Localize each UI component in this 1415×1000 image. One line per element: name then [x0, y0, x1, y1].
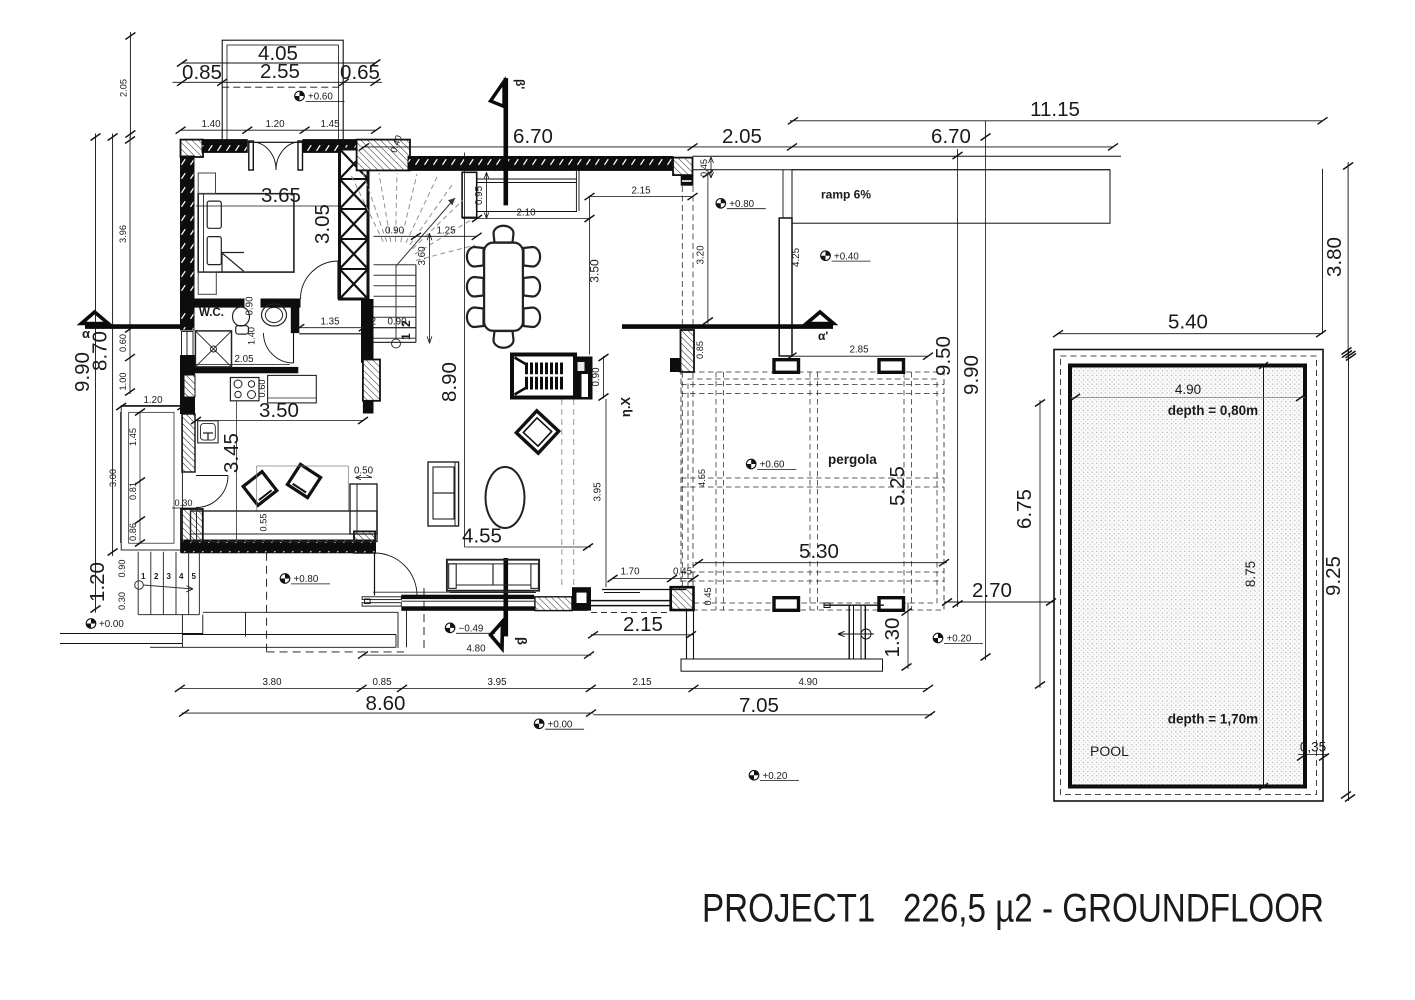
svg-text:PROJECT1 226,5 µ2 - GROUNDFL: PROJECT1 226,5 µ2 - GROUNDFLOOR: [702, 887, 1324, 931]
svg-text:1.20: 1.20: [265, 119, 285, 130]
svg-text:1.40: 1.40: [201, 119, 221, 130]
svg-text:β': β': [513, 79, 527, 89]
svg-text:5.25: 5.25: [886, 466, 909, 506]
svg-text:3.60: 3.60: [417, 246, 428, 266]
svg-text:2.10: 2.10: [516, 208, 536, 219]
svg-text:0.90: 0.90: [117, 560, 127, 578]
svg-text:9.90: 9.90: [960, 355, 983, 395]
svg-text:0.65: 0.65: [340, 61, 380, 84]
svg-text:8.90: 8.90: [438, 362, 461, 402]
svg-text:1.30: 1.30: [881, 618, 904, 658]
svg-text:3: 3: [167, 572, 172, 581]
svg-text:depth = 0,80m: depth = 0,80m: [1168, 403, 1258, 418]
svg-text:pergola: pergola: [828, 452, 877, 467]
svg-text:4.55: 4.55: [697, 469, 707, 487]
svg-text:2.15: 2.15: [632, 677, 652, 688]
svg-text:+0.80: +0.80: [729, 199, 754, 210]
svg-text:0.55: 0.55: [259, 514, 269, 532]
svg-text:3.95: 3.95: [487, 677, 507, 688]
svg-text:0,35: 0,35: [1300, 740, 1326, 755]
svg-text:0.81: 0.81: [128, 482, 138, 500]
svg-text:1.45: 1.45: [128, 428, 138, 446]
svg-text:3.50: 3.50: [588, 259, 602, 283]
svg-text:0.30: 0.30: [117, 592, 127, 610]
svg-text:ramp 6%: ramp 6%: [821, 188, 871, 202]
svg-text:0.95: 0.95: [474, 185, 485, 205]
svg-text:η.Χ: η.Χ: [618, 397, 633, 418]
svg-text:POOL: POOL: [1090, 743, 1129, 759]
svg-text:+0.00: +0.00: [99, 619, 124, 630]
svg-text:4.90: 4.90: [1175, 382, 1201, 397]
svg-text:1.00: 1.00: [118, 373, 128, 391]
svg-text:3.96: 3.96: [118, 225, 128, 243]
svg-text:1: 1: [141, 572, 146, 581]
svg-text:+0.20: +0.20: [947, 634, 972, 645]
svg-text:0.45: 0.45: [673, 567, 693, 578]
svg-text:+0.00: +0.00: [548, 719, 573, 730]
svg-text:0.30: 0.30: [175, 498, 193, 508]
svg-text:3.95: 3.95: [593, 482, 604, 502]
svg-text:4.55: 4.55: [462, 525, 502, 548]
svg-text:depth = 1,70m: depth = 1,70m: [1168, 712, 1258, 727]
svg-text:2: 2: [154, 572, 159, 581]
svg-text:+0.40: +0.40: [834, 251, 859, 262]
svg-text:8.75: 8.75: [1243, 561, 1258, 587]
svg-text:3.65: 3.65: [261, 184, 301, 207]
svg-text:7.05: 7.05: [739, 694, 779, 717]
svg-text:−0.49: −0.49: [459, 624, 484, 635]
svg-text:1.70: 1.70: [620, 567, 640, 578]
svg-text:1.25: 1.25: [436, 226, 456, 237]
svg-text:8.70: 8.70: [89, 331, 112, 371]
svg-text:3.00: 3.00: [108, 469, 118, 487]
svg-text:2.15: 2.15: [623, 613, 663, 636]
svg-text:0.50: 0.50: [354, 466, 374, 477]
svg-text:0.60: 0.60: [118, 334, 128, 352]
svg-text:8.60: 8.60: [366, 692, 406, 715]
svg-text:1: 1: [399, 333, 413, 340]
svg-text:2.05: 2.05: [119, 79, 129, 97]
svg-text:3.05: 3.05: [311, 204, 334, 244]
svg-text:0.85: 0.85: [372, 677, 392, 688]
svg-text:2.70: 2.70: [972, 579, 1012, 602]
svg-text:+0.80: +0.80: [294, 574, 319, 585]
svg-text:4.25: 4.25: [791, 247, 802, 267]
svg-text:0.90: 0.90: [387, 317, 407, 328]
svg-text:2.15: 2.15: [631, 186, 651, 197]
svg-text:0.85: 0.85: [182, 61, 222, 84]
svg-text:3.80: 3.80: [262, 677, 282, 688]
svg-text:0.85: 0.85: [695, 341, 705, 359]
svg-text:6.70: 6.70: [513, 125, 553, 148]
svg-text:3.45: 3.45: [220, 433, 243, 473]
svg-text:0.90: 0.90: [385, 226, 405, 237]
svg-text:3.80: 3.80: [1323, 237, 1346, 277]
svg-text:0.45: 0.45: [703, 588, 713, 606]
svg-text:4.90: 4.90: [798, 677, 818, 688]
svg-text:4.80: 4.80: [466, 644, 486, 655]
svg-text:6.70: 6.70: [931, 125, 971, 148]
svg-text:1.45: 1.45: [320, 119, 340, 130]
svg-text:α': α': [818, 329, 828, 343]
svg-text:2.05: 2.05: [722, 125, 762, 148]
svg-text:2.85: 2.85: [849, 345, 869, 356]
svg-text:6.75: 6.75: [1013, 489, 1036, 529]
svg-text:0.86: 0.86: [128, 523, 138, 541]
svg-text:β: β: [515, 637, 530, 645]
svg-text:+0.60: +0.60: [308, 92, 333, 103]
svg-text:5.40: 5.40: [1168, 311, 1208, 334]
svg-text:9.50: 9.50: [932, 336, 955, 376]
svg-text:.2: .2: [368, 317, 376, 328]
svg-text:W.C.: W.C.: [199, 307, 224, 319]
svg-text:1.20: 1.20: [86, 562, 109, 602]
svg-text:+0.20: +0.20: [763, 771, 788, 782]
svg-text:2.05: 2.05: [234, 354, 254, 365]
svg-text:1.35: 1.35: [320, 317, 340, 328]
svg-text:1.20: 1.20: [143, 395, 163, 406]
svg-text:9.25: 9.25: [1322, 556, 1345, 596]
svg-text:0.90: 0.90: [245, 296, 256, 316]
svg-text:+0.60: +0.60: [760, 460, 785, 471]
svg-text:3.20: 3.20: [696, 245, 707, 265]
svg-text:4: 4: [179, 572, 184, 581]
svg-text:11.15: 11.15: [1030, 98, 1080, 121]
svg-text:2.55: 2.55: [260, 60, 300, 83]
svg-text:0.90: 0.90: [591, 367, 602, 387]
svg-text:5.30: 5.30: [799, 540, 839, 563]
svg-text:5: 5: [192, 572, 197, 581]
